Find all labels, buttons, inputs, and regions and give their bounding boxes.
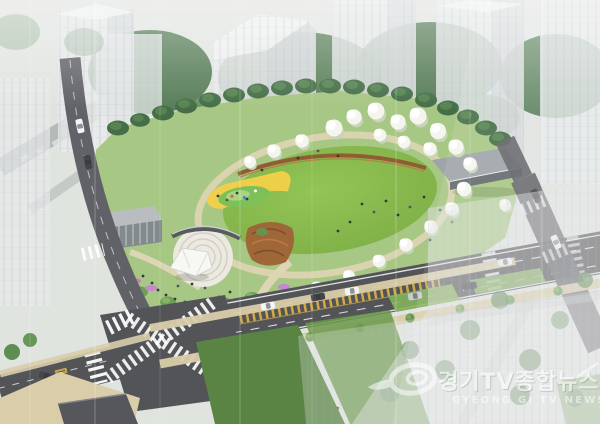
rendering-canvas: 경기TV종합뉴스 경기TV종합뉴스 GYEONG GI TV NEWS xyxy=(0,0,600,424)
watermark-title: 경기TV종합뉴스 xyxy=(438,369,599,395)
watermark-subtitle: GYEONG GI TV NEWS xyxy=(452,395,600,406)
haze-overlay xyxy=(0,0,600,424)
aerial-park-rendering: 경기TV종합뉴스 경기TV종합뉴스 GYEONG GI TV NEWS xyxy=(0,0,600,424)
